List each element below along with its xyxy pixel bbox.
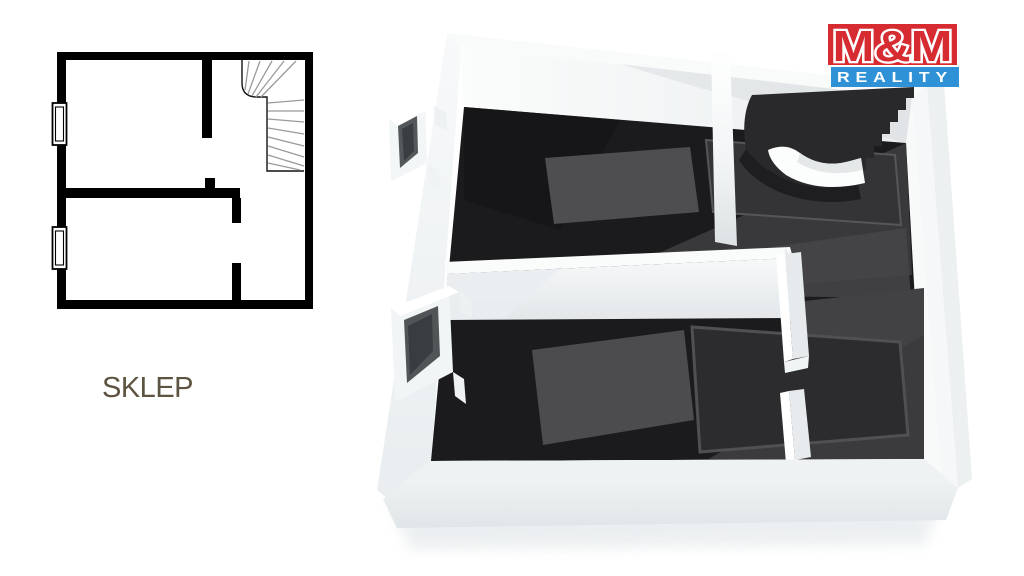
wall-vertical-lower-b [232,263,241,301]
front-wall-top-surface [405,459,945,486]
logo-mm-text: M&M [833,22,953,71]
wall-middle [66,188,240,198]
floor-plan-3d [377,33,972,550]
outer-walls-2d [57,52,313,309]
window-symbol-top [53,103,67,145]
wall-stub [205,178,215,188]
stairs-2d [242,60,304,171]
logo-reality-text: REALITY [837,69,953,86]
mm-reality-logo: M&M REALITY [824,22,964,90]
floorplan-advert-canvas: SKLEP M&M REALITY [0,0,1024,576]
rug-top-left [545,147,699,224]
interior-walls-2d [66,60,241,301]
room-label: SKLEP [102,372,193,405]
window-symbol-bottom [53,227,67,269]
wall-vertical-top [202,60,212,138]
stair-treads [245,61,304,170]
wall-vertical-lower-a [232,198,241,223]
floor-plan-2d [53,52,314,309]
